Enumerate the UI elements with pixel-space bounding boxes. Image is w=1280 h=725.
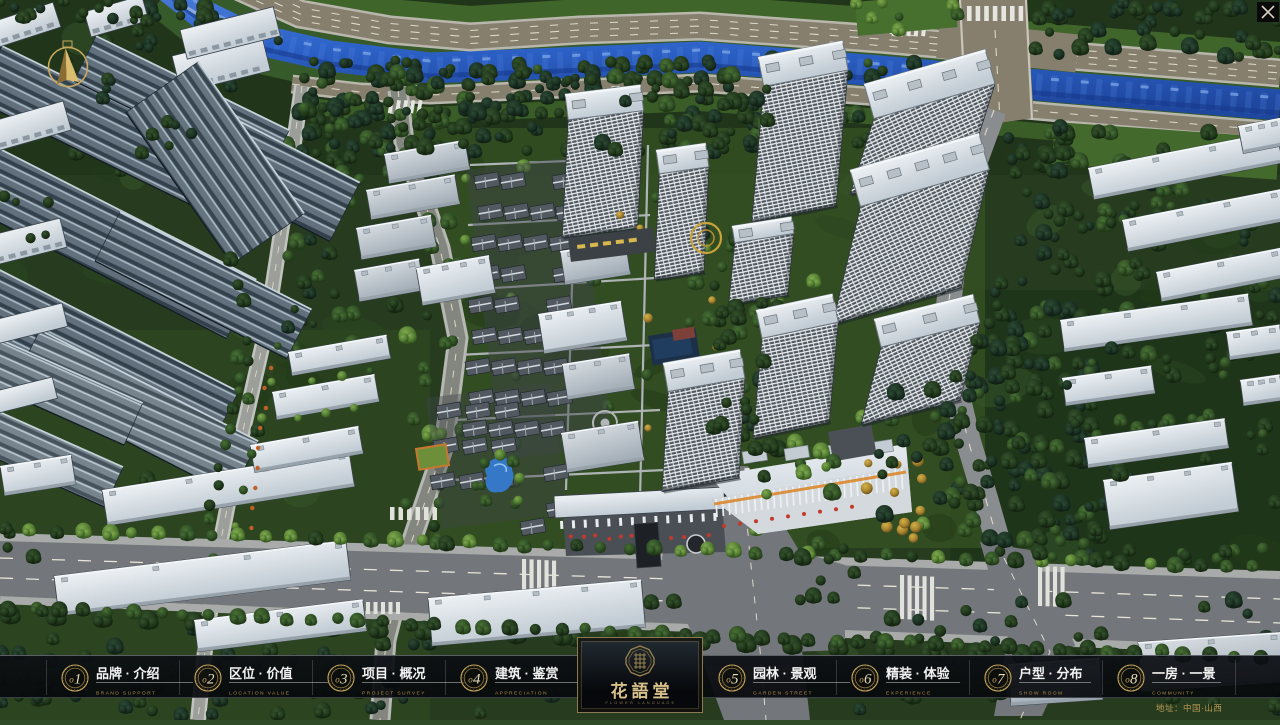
svg-text:4: 4 (473, 671, 481, 687)
svg-text:2: 2 (207, 671, 215, 687)
svg-text:1: 1 (74, 671, 82, 687)
svg-text:8: 8 (1130, 671, 1138, 687)
svg-text:5: 5 (731, 671, 739, 687)
svg-text:6: 6 (864, 671, 872, 687)
svg-text:3: 3 (339, 671, 348, 687)
